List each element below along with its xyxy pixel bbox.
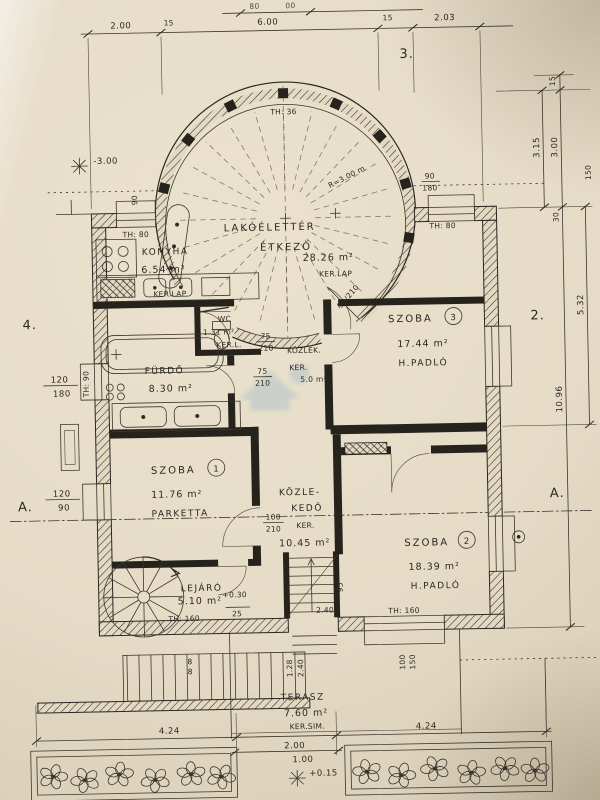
label-room2: SZOBA 2 18.39 m² H.PADLÓ TH: 160 <box>386 531 477 615</box>
svg-text:210: 210 <box>258 343 273 352</box>
svg-text:TH: 80: TH: 80 <box>428 221 456 231</box>
room3-top-window <box>428 195 474 222</box>
svg-text:95: 95 <box>336 582 345 592</box>
dim-window-w: 100 <box>398 654 407 669</box>
dim-riser-b: 8 <box>188 667 193 676</box>
room2-bottom-window <box>364 615 445 645</box>
section-label-left: A. <box>18 500 33 515</box>
svg-text:LEJÁRÓ: LEJÁRÓ <box>181 582 223 595</box>
dim-top-wall-right: 15 <box>383 13 393 22</box>
svg-text:KONYHA: KONYHA <box>142 247 189 258</box>
dim-top-edge-a: 80 <box>249 2 259 11</box>
dim-right-150: 150 <box>584 165 593 180</box>
svg-text:2.40: 2.40 <box>316 605 334 614</box>
svg-text:PARKETTA: PARKETTA <box>152 509 209 520</box>
left-window-2 <box>83 484 112 521</box>
dim-left-win2-h: 90 <box>58 503 70 513</box>
living-room-circle <box>153 80 418 351</box>
svg-text:H.PADLÓ: H.PADLÓ <box>411 579 461 592</box>
svg-text:SZOBA: SZOBA <box>404 537 449 549</box>
sheet-label-left: 4. <box>22 318 37 333</box>
svg-text:25: 25 <box>232 609 242 618</box>
dim-right-15: 15 <box>548 76 557 86</box>
level-mark-basement: -3.00 <box>71 156 118 174</box>
svg-text:LAKÓÉLETTÉR: LAKÓÉLETTÉR <box>224 220 316 235</box>
room2-right-window <box>488 516 515 571</box>
dim-bath-parapet: TH: 90 <box>81 371 91 399</box>
terrace-steps <box>37 652 310 713</box>
svg-text:210: 210 <box>266 524 281 533</box>
dim-left-win2-w: 120 <box>53 489 71 499</box>
svg-text:3: 3 <box>450 313 456 323</box>
svg-text:8.30 m²: 8.30 m² <box>149 383 193 395</box>
svg-text:TERASZ: TERASZ <box>280 693 325 704</box>
dim-top-middle: 6.00 <box>257 17 278 27</box>
svg-text:TH: 160: TH: 160 <box>167 614 200 624</box>
svg-text:KEDŐ: KEDŐ <box>291 503 323 515</box>
svg-text:TH: 160: TH: 160 <box>387 606 420 616</box>
label-bath: FÜRDŐ 8.30 m² <box>145 365 193 395</box>
svg-text:2: 2 <box>464 537 470 547</box>
svg-text:100: 100 <box>266 512 281 521</box>
dim-window-h: 150 <box>408 654 417 669</box>
label-room3: SZOBA 3 17.44 m² H.PADLÓ <box>388 307 463 369</box>
svg-text:KER.: KER. <box>289 363 307 372</box>
svg-text:7.60 m²: 7.60 m² <box>284 708 328 720</box>
room-labels: TH: 36 R=3.00 m LAKÓÉLETTÉR ÉTKEZŐ 28.26… <box>119 104 479 735</box>
svg-text:-3.00: -3.00 <box>93 156 118 166</box>
dim-right-30: 30 <box>551 212 560 222</box>
dim-bottom-center: 2.00 <box>284 741 305 751</box>
dim-top-right: 2.03 <box>434 13 455 23</box>
dim-stair-length: 2.40 <box>296 659 305 677</box>
dim-riser-a: 8 <box>187 657 192 666</box>
dim-entry-width: 90 <box>130 195 139 205</box>
svg-text:11.76 m²: 11.76 m² <box>151 489 202 501</box>
dim-top-left: 2.00 <box>110 21 131 31</box>
svg-text:75: 75 <box>261 332 271 341</box>
svg-text:SZOBA: SZOBA <box>388 313 433 325</box>
dim-bottom-left: 4.24 <box>159 726 180 736</box>
svg-text:KER.LAP: KER.LAP <box>153 289 186 299</box>
dim-chain-top: 2.00 15 6.00 15 2.03 80 00 <box>80 0 516 209</box>
dim-top-wall-left: 15 <box>164 18 174 27</box>
dim-right-3-00: 3.00 <box>550 136 560 157</box>
dim-bottom-center-small: 1.00 <box>292 755 313 765</box>
svg-text:KER.L.: KER.L. <box>216 340 242 349</box>
svg-text:KÖZLEK.: KÖZLEK. <box>287 346 321 356</box>
dim-stair-width: 1.28 <box>285 659 294 677</box>
svg-text:TH: 36: TH: 36 <box>269 107 297 117</box>
dim-right-5-32: 5.32 <box>576 294 586 315</box>
radiator-icon <box>345 442 387 454</box>
svg-text:KÖZLE-: KÖZLE- <box>279 487 321 499</box>
dim-right-3-15: 3.15 <box>532 137 542 158</box>
svg-text:28.26 m²: 28.26 m² <box>303 252 354 264</box>
label-hall: KÖZLE- KEDŐ 100 210 KER. 10.45 m² <box>263 486 331 549</box>
svg-text:18.39 m²: 18.39 m² <box>408 561 459 573</box>
section-label-right: A. <box>550 486 565 501</box>
svg-text:H.PADLÓ: H.PADLÓ <box>398 356 448 369</box>
floor-plan-photo: { "sheet": { "top_label": "3.", "left_la… <box>0 0 600 800</box>
svg-text:180: 180 <box>422 183 437 192</box>
label-stair: LEJÁRÓ 5.10 m² TH: 160 +0.30 25 95 2.40 <box>167 579 346 623</box>
label-room1: SZOBA 1 11.76 m² PARKETTA <box>150 459 225 520</box>
svg-text:5.0 m²: 5.0 m² <box>300 374 327 384</box>
svg-text:WC: WC <box>218 314 231 323</box>
sheet-label-right: 2. <box>530 308 545 323</box>
svg-text:KER.: KER. <box>296 521 314 530</box>
dim-bottom-right: 4.24 <box>416 721 437 731</box>
svg-text:SZOBA: SZOBA <box>151 465 196 477</box>
svg-text:KER.LAP: KER.LAP <box>319 269 352 279</box>
room3-right-window <box>485 326 512 386</box>
svg-text:90: 90 <box>425 171 435 180</box>
svg-text:5.10 m²: 5.10 m² <box>178 596 222 608</box>
svg-text:17.44 m²: 17.44 m² <box>397 338 448 350</box>
svg-text:+0.15: +0.15 <box>309 768 338 779</box>
dim-left-win1-w: 120 <box>51 375 69 385</box>
sheet-label-top: 3. <box>399 47 414 62</box>
svg-text:+0.30: +0.30 <box>222 590 247 599</box>
dim-right-10-96: 10.96 <box>555 385 566 412</box>
svg-text:75: 75 <box>257 367 267 376</box>
dim-left-win1-h: 180 <box>53 389 71 399</box>
svg-text:R=3.00 m: R=3.00 m <box>327 164 367 190</box>
svg-text:1: 1 <box>213 465 219 475</box>
svg-text:1.31 m²: 1.31 m² <box>203 327 235 337</box>
level-mark-terrace: +0.15 <box>289 768 338 786</box>
svg-text:TH: 80: TH: 80 <box>121 230 149 240</box>
svg-text:KER.SIM.: KER.SIM. <box>290 722 325 732</box>
floor-plan-drawing: 2.00 15 6.00 15 2.03 80 00 15 3.15 3.00 … <box>0 0 600 800</box>
dim-top-edge-b: 00 <box>285 1 295 10</box>
svg-text:6.54 m²: 6.54 m² <box>141 264 185 276</box>
svg-text:10.45 m²: 10.45 m² <box>279 537 330 549</box>
svg-text:FÜRDŐ: FÜRDŐ <box>145 365 185 377</box>
planter-left <box>31 747 238 800</box>
svg-text:210: 210 <box>255 379 270 388</box>
label-terrace: TERASZ 7.60 m² KER.SIM. <box>280 693 329 732</box>
